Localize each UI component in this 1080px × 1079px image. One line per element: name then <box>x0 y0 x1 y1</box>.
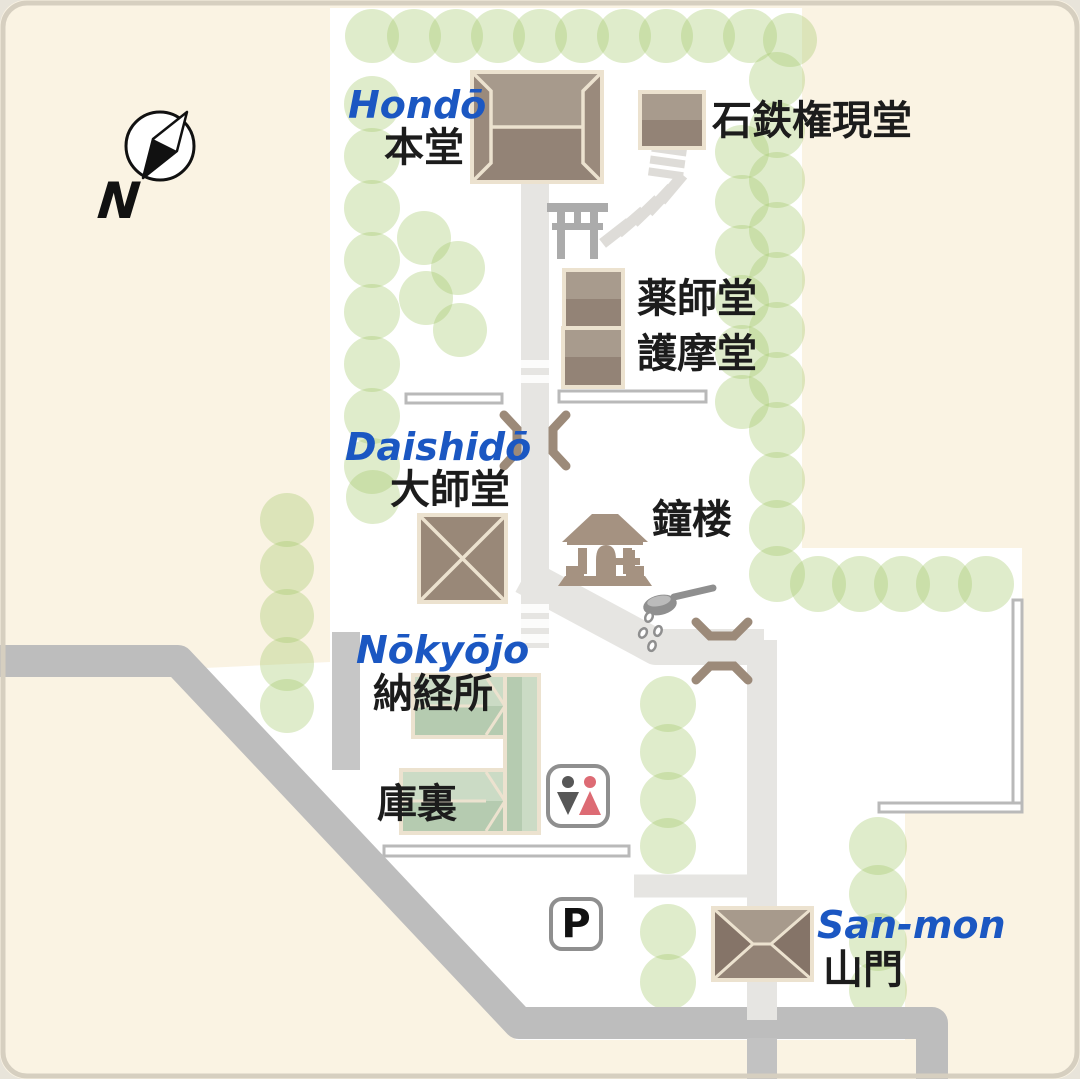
label-sanmon-romaji: San-mon <box>817 906 1006 944</box>
label-shoro-jp: 鐘楼 <box>652 500 732 540</box>
label-nokyojo-jp: 納経所 <box>373 674 493 714</box>
hondo-building <box>470 70 604 184</box>
toilet-icon <box>548 766 608 826</box>
gomado-building <box>561 326 625 389</box>
label-gomado-jp: 護摩堂 <box>637 334 757 374</box>
label-daishido-jp: 大師堂 <box>390 470 510 510</box>
label-nokyojo-romaji: Nōkyōjo <box>356 631 529 669</box>
temple-map: Hondō 本堂 石鉄権現堂 薬師堂 護摩堂 Daishidō 大師堂 鐘楼 N… <box>0 0 1080 1079</box>
yakushido-building <box>562 268 625 330</box>
label-daishido-romaji: Daishidō <box>345 428 531 466</box>
gongendo-building <box>638 90 706 150</box>
label-yakushido-jp: 薬師堂 <box>637 279 757 319</box>
label-hondo-romaji: Hondō <box>348 86 486 124</box>
sanmon-building <box>711 906 814 982</box>
label-sanmon-jp: 山門 <box>823 950 903 990</box>
north-compass-icon <box>126 112 194 180</box>
parking-letter: P <box>551 899 601 949</box>
daishido-building <box>417 513 508 604</box>
label-hondo-jp: 本堂 <box>384 128 464 168</box>
label-gongendo-jp: 石鉄権現堂 <box>712 101 912 141</box>
approach-road-stub <box>747 1038 777 1079</box>
north-letter: N <box>95 172 143 230</box>
label-kuri-jp: 庫裏 <box>377 784 457 824</box>
